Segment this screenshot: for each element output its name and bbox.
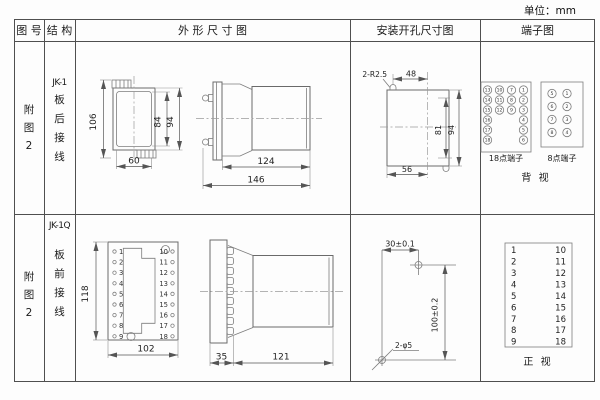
terminal-circle: 16 [483,116,491,124]
row1-view-label: 背 视 [521,171,550,184]
terminal8-label: 8点端子 [547,153,576,163]
jk1-front-view-drawing: 106 84 94 60 [89,76,183,169]
svg-text:12: 12 [497,108,503,114]
terminal-circle: 7 [548,115,556,123]
svg-text:1: 1 [511,246,516,256]
svg-text:14: 14 [485,98,491,104]
terminal-circle: 14 [483,96,491,104]
terminal-circle: 4 [519,116,527,124]
svg-text:4: 4 [119,280,123,288]
terminal-circle: 1 [563,89,571,97]
svg-text:5: 5 [551,91,554,97]
terminal-circle: 10 [495,86,503,94]
svg-text:3: 3 [522,108,525,114]
terminal-circle: 11 [495,96,503,104]
terminal-list-left: 1 2 3 4 5 6 7 8 9 [511,246,516,348]
svg-text:8: 8 [119,322,123,330]
jk1-terminal-diagram-18: 13 14 15 16 17 18 10 11 12 7 8 9 1 2 3 4… [481,82,531,163]
terminal-circle: 17 [483,126,491,134]
svg-text:16: 16 [485,118,491,124]
svg-text:1: 1 [522,88,525,94]
svg-text:1: 1 [119,248,123,256]
terminal-circle: 7 [507,86,515,94]
dim-56-label: 56 [402,165,412,174]
terminal18-label: 18点端子 [489,153,523,163]
mounting-hole [127,333,135,341]
jk1-terminal-diagram-8: 5 6 7 8 1 2 3 4 8点端子 [541,82,583,163]
front-left-terminals: 1 2 3 4 5 6 7 8 9 [113,248,124,341]
svg-text:18: 18 [555,338,566,348]
dim-106-label: 106 [89,113,99,130]
svg-text:14: 14 [159,290,168,298]
jk1q-install-drawing: 30±0.1 100±0.2 2-φ5 [372,240,456,371]
terminal-circle: 3 [519,106,527,114]
dim-100-label: 100±0.2 [431,298,440,333]
svg-text:6: 6 [119,301,123,309]
dim-102-label: 102 [137,345,154,355]
svg-text:15: 15 [159,301,168,309]
svg-text:2: 2 [566,104,569,110]
svg-text:3: 3 [566,117,569,123]
dim-35-label: 35 [216,353,227,363]
terminal-circle: 12 [495,106,503,114]
svg-text:4: 4 [566,130,569,136]
svg-text:12: 12 [159,269,168,277]
svg-text:15: 15 [555,303,566,313]
svg-text:11: 11 [159,259,168,267]
terminal-bumps [227,248,234,335]
svg-text:8: 8 [510,98,513,104]
hole-size-label: 2-φ5 [395,341,412,350]
svg-text:5: 5 [511,292,516,302]
dim-121-label: 121 [272,353,289,363]
terminal-circle: 6 [548,102,556,110]
dim-94b-label: 94 [447,125,456,135]
dim-124-label: 124 [257,157,274,167]
svg-text:9: 9 [119,333,123,341]
svg-text:9: 9 [510,108,513,114]
svg-text:9: 9 [511,338,516,348]
svg-text:17: 17 [485,128,491,134]
dim-30-label: 30±0.1 [385,240,415,249]
dim-81-label: 81 [434,125,443,135]
svg-text:6: 6 [511,303,516,313]
svg-text:17: 17 [555,326,566,336]
svg-text:15: 15 [485,108,491,114]
dim-146-label: 146 [247,176,264,186]
svg-text:10: 10 [159,248,168,256]
dim-60-label: 60 [128,157,140,167]
terminal-circle: 6 [519,136,527,144]
svg-text:11: 11 [555,258,566,268]
terminal-circle: 9 [507,106,515,114]
jk1q-front-view-drawing: 1 2 3 4 5 6 7 8 9 10 11 12 13 14 15 16 1… [81,242,178,358]
terminal-circle: 15 [483,106,491,114]
jk1q-side-view-drawing: 35 121 [200,240,345,366]
svg-text:3: 3 [511,269,516,279]
svg-text:10: 10 [555,246,566,256]
terminal-circle: 3 [563,115,571,123]
terminal-circle: 5 [548,89,556,97]
jk1-side-view-drawing: 124 146 [196,82,322,189]
jk1q-terminal-table: 1 2 3 4 5 6 7 8 9 10 11 12 13 14 15 16 1… [505,243,572,368]
svg-text:7: 7 [511,315,516,325]
terminal-circle: 5 [519,126,527,134]
svg-text:8: 8 [551,130,554,136]
drawings-layer: 106 84 94 60 124 146 [0,0,600,400]
svg-text:18: 18 [485,138,491,144]
terminal-list-right: 10 11 12 13 14 15 16 17 18 [555,246,566,348]
terminal-circle: 8 [548,128,556,136]
svg-text:16: 16 [555,315,566,325]
svg-text:7: 7 [510,88,513,94]
svg-text:3: 3 [119,269,123,277]
dim-94-label: 94 [166,116,176,128]
terminal-circle: 2 [563,102,571,110]
svg-text:16: 16 [159,312,168,320]
svg-text:5: 5 [522,128,525,134]
svg-text:11: 11 [497,98,503,104]
terminal-circle: 1 [519,86,527,94]
svg-text:1: 1 [566,91,569,97]
svg-text:4: 4 [511,280,516,290]
terminal-circle: 4 [563,128,571,136]
svg-text:12: 12 [555,269,566,279]
dim-118-label: 118 [81,285,91,302]
terminal-circle: 18 [483,136,491,144]
jk1-install-drawing: 48 2-R2.5 81 94 56 [362,70,462,179]
manual-page: { "unit_label": "单位：mm", "headers": { "f… [0,0,600,400]
terminal-circle: 2 [519,96,527,104]
front-right-terminals: 10 11 12 13 14 15 16 17 18 [159,248,174,341]
svg-text:5: 5 [119,290,123,298]
svg-text:2: 2 [522,98,525,104]
svg-text:14: 14 [555,292,566,302]
svg-text:2: 2 [511,258,516,268]
svg-text:13: 13 [555,280,566,290]
row2-view-label: 正 视 [523,355,552,368]
terminal-circle: 8 [507,96,515,104]
svg-text:13: 13 [159,280,168,288]
dim-84-label: 84 [154,116,164,128]
svg-text:17: 17 [159,322,168,330]
svg-text:6: 6 [551,104,554,110]
svg-text:7: 7 [551,117,554,123]
svg-text:7: 7 [119,312,123,320]
notch-radius-label: 2-R2.5 [362,70,387,79]
dim-48-label: 48 [406,70,416,79]
svg-text:8: 8 [511,326,516,336]
svg-text:18: 18 [159,333,168,341]
svg-text:6: 6 [522,138,525,144]
svg-text:10: 10 [497,88,503,94]
svg-text:13: 13 [485,88,491,94]
terminal-circle: 13 [483,86,491,94]
svg-text:2: 2 [119,259,123,267]
svg-text:4: 4 [522,118,525,124]
